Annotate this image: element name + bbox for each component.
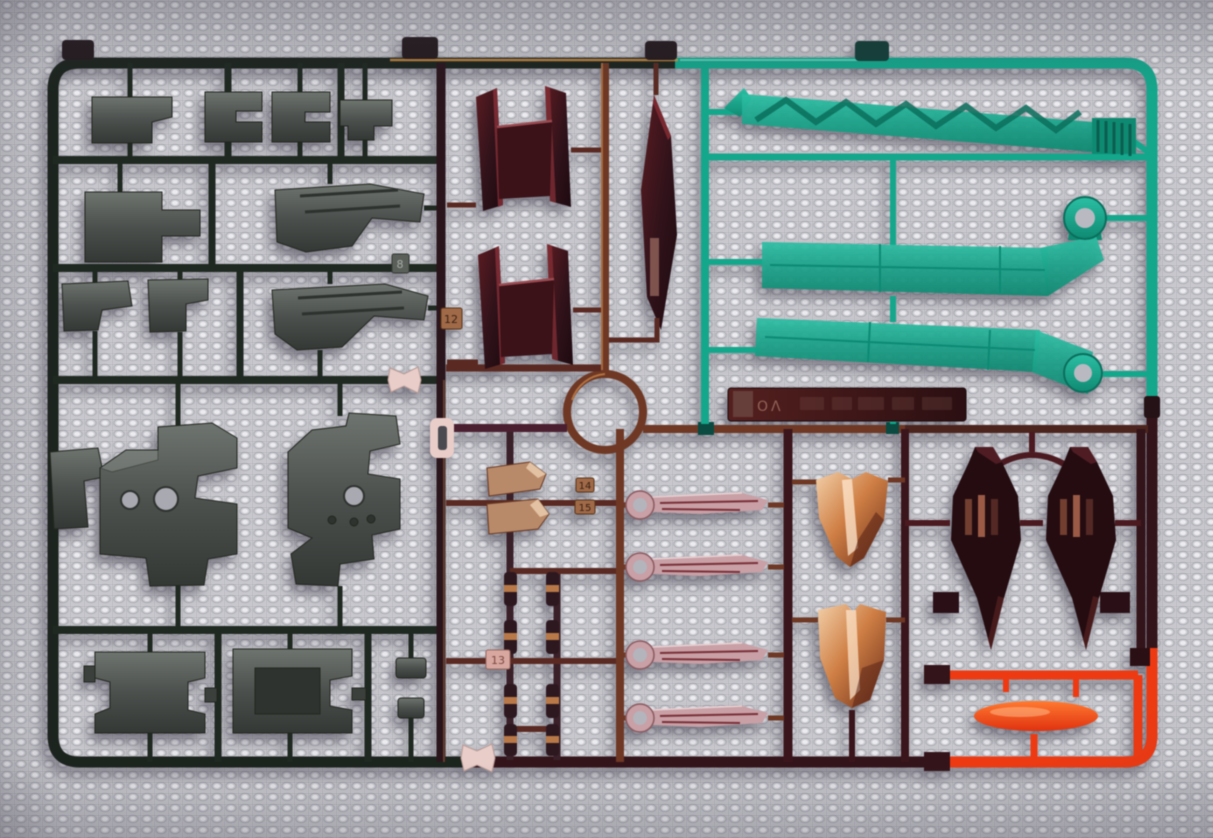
blade-tip	[1040, 236, 1104, 296]
gunmetal-torso-frame-left	[100, 423, 237, 586]
shield-slot	[991, 499, 998, 535]
copper-shell-part	[816, 472, 888, 567]
joint-band	[504, 585, 517, 592]
teal-truss-blade-part	[724, 88, 1136, 156]
torso-hole	[154, 487, 178, 511]
red-wing-part-2	[478, 244, 573, 369]
clear-teal-zone	[705, 63, 1148, 424]
blade-hub-hole	[1075, 208, 1095, 228]
joint-part	[546, 620, 559, 654]
block-panel	[255, 668, 320, 714]
metallic-pink-blade-parts	[626, 491, 768, 732]
gunmetal-block-part	[233, 649, 366, 733]
joint-band	[504, 736, 517, 743]
sprue-photo: OΛ	[0, 0, 1213, 838]
molded-text-block	[800, 397, 824, 410]
pink-blade-part	[626, 491, 768, 519]
joint-part	[504, 572, 517, 606]
edge-tab	[1144, 396, 1160, 418]
edge-tab	[855, 41, 889, 61]
teal-blade-part-2	[755, 318, 1102, 394]
tag-number: 8	[397, 258, 404, 271]
dark-red-shield	[951, 447, 1021, 650]
wing-bridge	[499, 279, 554, 357]
torso-dot	[367, 515, 375, 523]
joint-band	[546, 736, 559, 743]
gunmetal-part	[85, 192, 200, 262]
gunmetal-part	[272, 92, 330, 142]
stem	[1000, 455, 1064, 464]
shield-body	[951, 447, 1021, 650]
joint-band	[546, 633, 559, 640]
gunmetal-block-part	[84, 652, 217, 733]
joint-part	[504, 724, 517, 756]
joint-band	[504, 697, 517, 704]
torso-dot	[328, 516, 336, 524]
tag-number: 12	[444, 313, 458, 326]
molded-text-block	[858, 397, 884, 410]
block-tab	[84, 666, 95, 682]
block-tab	[352, 688, 366, 700]
dark-red-shield	[1046, 447, 1116, 650]
dark-red-shield-parts	[951, 447, 1116, 650]
pink-bowtie-clip	[388, 367, 421, 393]
number-tag: 14	[576, 478, 594, 492]
tag-number: 14	[579, 481, 592, 492]
nameplate-illegible-molding	[800, 397, 952, 410]
molded-nameplate: OΛ	[728, 388, 966, 421]
connector-block	[933, 592, 959, 613]
gunmetal-part	[340, 100, 392, 140]
gunmetal-small-square	[396, 658, 426, 678]
copper-wedge-part	[487, 499, 549, 534]
joint-part	[504, 620, 517, 654]
shield-slot	[965, 499, 972, 535]
molded-text-block	[922, 397, 952, 410]
edge-tab	[645, 41, 677, 60]
molded-text-block	[832, 397, 852, 410]
connector-block	[924, 665, 950, 684]
blade-ring-hole	[633, 498, 647, 512]
number-tag: 15	[575, 500, 595, 514]
gunmetal-wing-part	[272, 284, 428, 350]
polished-copper-shell-parts	[816, 472, 888, 708]
copper-shell-part	[818, 604, 886, 708]
torso-hole	[344, 486, 364, 506]
connector-block	[1100, 592, 1130, 613]
joint-part	[546, 684, 559, 718]
gunmetal-torso-frame-right	[288, 413, 400, 586]
joint-part	[504, 684, 517, 718]
number-tag: 8	[392, 254, 409, 273]
molded-text-block	[892, 397, 914, 410]
blade-ring-hole	[633, 711, 647, 725]
red-wing-part-1	[476, 86, 571, 211]
blade-body	[755, 318, 1040, 372]
number-tag: 13	[486, 650, 510, 669]
shield-slot	[1073, 495, 1080, 537]
pink-blade-part	[626, 704, 768, 732]
nameplate-embossed-text: OΛ	[757, 399, 784, 415]
joint-part	[546, 724, 559, 756]
connector-block	[1130, 648, 1150, 666]
blade-slot	[650, 238, 659, 296]
gunmetal-part	[62, 281, 132, 331]
gunmetal-part	[148, 279, 208, 332]
wing-bridge	[497, 121, 552, 199]
joint-band	[546, 585, 559, 592]
pink-clip	[430, 418, 454, 458]
shield-slot	[1086, 499, 1093, 535]
pink-blade-part	[626, 553, 768, 581]
nameplate-notch	[733, 391, 753, 417]
tag-number: 13	[491, 654, 505, 667]
edge-tab	[62, 40, 94, 60]
red-blade-part	[641, 95, 677, 330]
block-body	[95, 652, 205, 733]
shield-slot	[1060, 499, 1067, 535]
shield-body	[1046, 447, 1116, 650]
blade-hub-hole	[1074, 364, 1092, 382]
torso-hole	[121, 491, 139, 509]
edge-tab	[402, 37, 438, 59]
tag-number: 15	[579, 503, 592, 514]
gunmetal-part	[50, 448, 104, 529]
gunmetal-small-square	[398, 698, 424, 718]
gunmetal-part	[205, 92, 262, 142]
teal-blade-part-1	[762, 197, 1106, 296]
copper-wedge-part	[487, 462, 546, 496]
stem	[609, 318, 657, 340]
blade-ring-hole	[633, 560, 647, 574]
shield-slot	[978, 495, 985, 537]
orange-lens-highlight	[990, 707, 1050, 717]
connector-block	[924, 752, 950, 771]
metallic-red-wing-parts	[447, 63, 677, 369]
joint-band	[546, 697, 559, 704]
clip-slot	[438, 426, 447, 450]
gunmetal-part	[92, 97, 172, 143]
torso-dot	[350, 518, 358, 526]
number-tag: 12	[441, 308, 462, 329]
small-copper-joint-parts	[487, 462, 559, 756]
gunmetal-wing-part	[275, 184, 424, 252]
blade-ring-hole	[633, 648, 647, 662]
clear-orange-zone	[924, 648, 1150, 771]
joint-part	[546, 572, 559, 606]
pink-blade-part	[626, 641, 768, 669]
runner-ring	[567, 374, 643, 450]
joint-band	[504, 633, 517, 640]
block-tab	[205, 688, 217, 702]
pink-bowtie-clip	[461, 744, 495, 772]
wedge-body	[487, 462, 546, 496]
